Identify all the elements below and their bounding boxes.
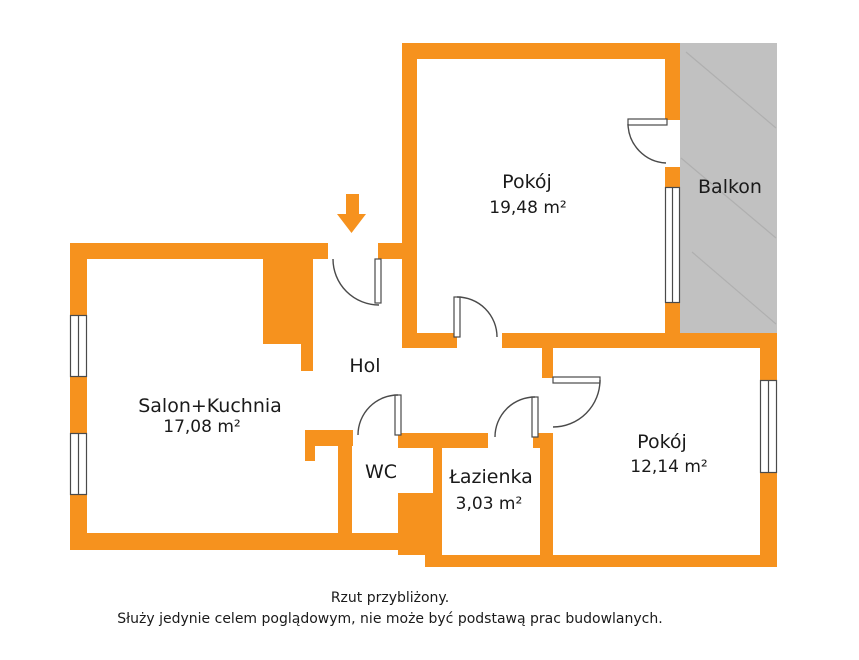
floorplan-page: Pokój 19,48 m² Balkon Salon+Kuchnia 17,0…	[0, 0, 859, 660]
door-balkon	[628, 119, 667, 163]
door-entrance	[333, 259, 381, 305]
wall-segment	[760, 340, 777, 380]
wall-segment	[305, 446, 315, 461]
wall-segment	[540, 433, 553, 555]
wall-segment	[70, 533, 433, 550]
wall-segment	[301, 344, 313, 371]
disclaimer-line1: Rzut przybliżony.	[0, 588, 780, 609]
room-label-pokoj-gorny: Pokój	[502, 171, 552, 193]
entrance-arrow-icon	[337, 194, 366, 233]
room-label-balkon: Balkon	[698, 176, 762, 198]
wall-segment	[70, 243, 87, 550]
room-area-pokoj-gorny: 19,48 m²	[489, 198, 566, 218]
wall-segment	[398, 493, 433, 555]
wall-segment	[760, 473, 777, 567]
wall-segment	[425, 555, 777, 567]
room-label-hol: Hol	[349, 355, 380, 377]
wall-segment	[665, 43, 680, 120]
wall-segment	[402, 43, 417, 340]
door-pokoj-gorny	[454, 297, 497, 337]
doors	[333, 119, 667, 437]
wall-segment	[402, 333, 457, 348]
window-pokoj-dolny	[761, 381, 777, 473]
wall-segment	[502, 333, 777, 348]
room-label-wc: WC	[365, 461, 397, 483]
chimney-block	[263, 259, 313, 344]
window-balcony	[666, 188, 680, 303]
room-label-salon-kuchnia: Salon+Kuchnia	[138, 395, 282, 417]
wall-segment	[433, 446, 442, 555]
wall-segment	[305, 430, 353, 446]
room-area-salon-kuchnia: 17,08 m²	[163, 417, 240, 437]
wall-segment	[398, 433, 488, 448]
window-salon-lower	[71, 434, 87, 495]
wall-segment	[665, 303, 680, 336]
wall-segment	[402, 43, 678, 59]
window-salon-upper	[71, 316, 87, 377]
wall-segment	[70, 243, 328, 259]
wall-segment	[542, 348, 553, 378]
door-wc	[358, 395, 401, 435]
door-pokoj-dolny	[553, 377, 600, 427]
disclaimer: Rzut przybliżony. Służy jedynie celem po…	[0, 588, 780, 630]
floorplan-canvas	[0, 0, 859, 660]
room-label-pokoj-dolny: Pokój	[637, 431, 687, 453]
walls	[70, 43, 777, 567]
disclaimer-line2: Służy jedynie celem poglądowym, nie może…	[0, 609, 780, 630]
room-label-lazienka: Łazienka	[449, 466, 533, 488]
door-lazienka	[495, 397, 538, 437]
room-area-pokoj-dolny: 12,14 m²	[630, 457, 707, 477]
room-area-lazienka: 3,03 m²	[456, 494, 523, 514]
wall-segment	[665, 167, 680, 187]
